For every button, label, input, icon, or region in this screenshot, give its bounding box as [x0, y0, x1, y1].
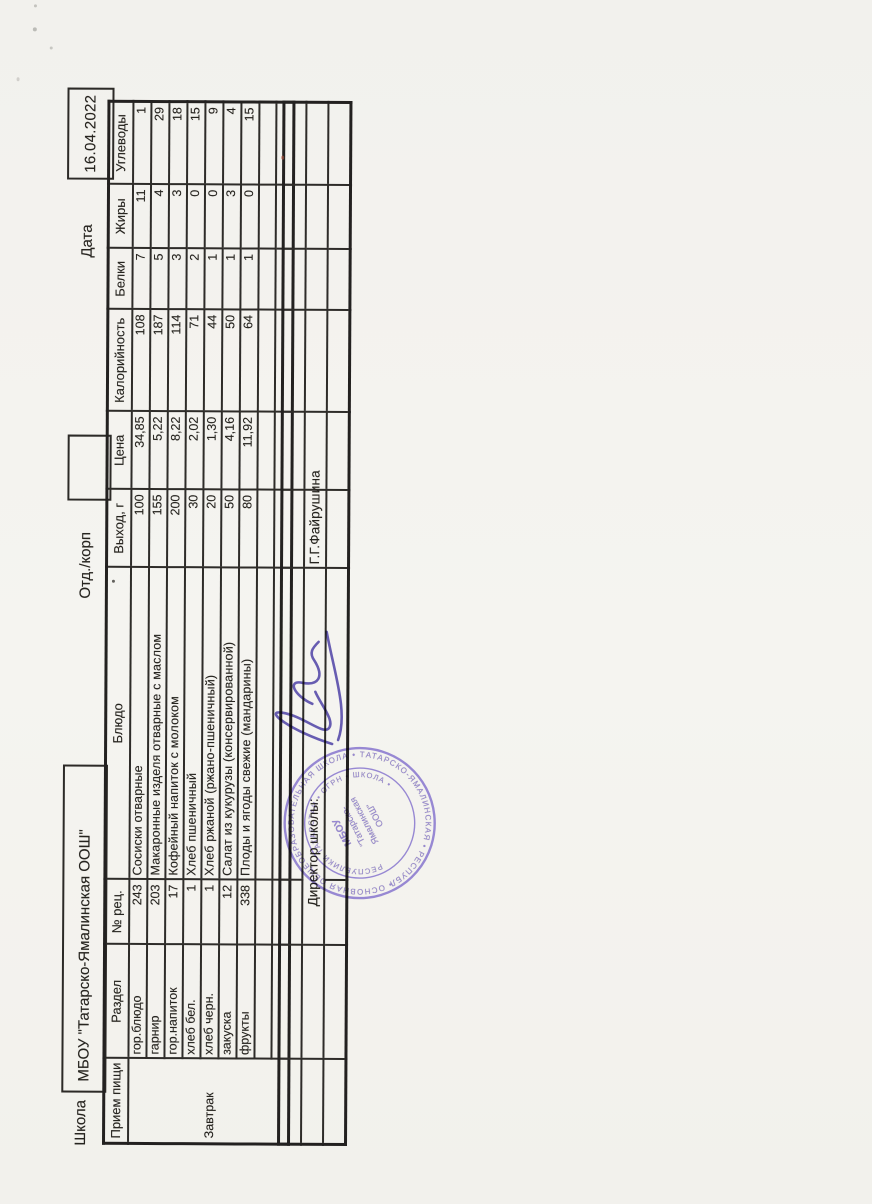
cell-dish: Кофейный напиток с молоком — [165, 568, 185, 880]
document: Школа МБОУ "Татарско-Ямалинская ООШ" Отд… — [0, 0, 872, 1204]
col-header-fat: Жиры — [108, 184, 133, 248]
scanned-menu-page: { "header": { "school_label": "Школа", "… — [0, 0, 872, 1200]
cell-carbs: 15 — [187, 102, 205, 185]
cell-dish: Хлеб ржаной (ржано-пшеничный) — [201, 568, 221, 880]
school-name: МБОУ "Татарско-Ямалинская ООШ" — [75, 829, 93, 1081]
cell-protein: 1 — [240, 249, 258, 310]
dept-label: Отд./корп — [77, 532, 94, 599]
red-speck-artifact — [281, 156, 284, 160]
cell-dish: Макаронные изделя отварные с маслом — [147, 567, 167, 879]
cell-price: 8,22 — [167, 412, 185, 490]
cell-protein: 1 — [204, 249, 222, 310]
col-header-recipe: № рец. — [105, 879, 130, 944]
cell-section: фрукты — [236, 945, 255, 1059]
cell-output: 50 — [221, 490, 239, 568]
date-label: Дата — [79, 224, 96, 257]
cell-output: 20 — [203, 490, 221, 568]
col-header-meal: Прием пищи — [104, 1058, 129, 1143]
cell-price: 2,02 — [185, 412, 203, 490]
rotated-sheet: Школа МБОУ "Татарско-Ямалинская ООШ" Отд… — [0, 0, 872, 1200]
cell-recipe: 338 — [237, 880, 255, 945]
cell-calories: 64 — [240, 310, 259, 412]
cell-recipe: 12 — [219, 880, 237, 945]
cell-recipe: 17 — [165, 880, 183, 945]
cell-carbs: 1 — [133, 101, 151, 184]
cell-fat: 0 — [241, 185, 259, 249]
school-name-box: МБОУ "Татарско-Ямалинская ООШ" — [61, 765, 108, 1093]
col-header-output: Выход, г — [107, 489, 132, 567]
cell-carbs: 4 — [223, 102, 241, 185]
cell-recipe: 243 — [129, 879, 147, 944]
cell-section: закуска — [218, 945, 237, 1059]
cell-protein: 5 — [150, 248, 168, 309]
director-signature — [258, 610, 364, 761]
cell-section: хлеб черн. — [200, 945, 219, 1059]
cell-carbs: 15 — [241, 102, 259, 185]
col-header-calories: Калорийность — [107, 309, 132, 411]
col-header-carbs: Углеводы — [109, 101, 134, 184]
cell-recipe: 1 — [183, 880, 201, 945]
cell-protein: 7 — [132, 248, 150, 309]
cell-fat: 3 — [223, 185, 241, 249]
col-header-section: Раздел — [104, 944, 129, 1058]
date-value: 16.04.2022 — [82, 95, 99, 173]
ink-dot-artifact — [112, 580, 115, 583]
cell-dish: Сосиски отварные — [129, 567, 149, 879]
cell-protein: 3 — [168, 249, 186, 310]
cell-section: гор.блюдо — [128, 944, 147, 1058]
cell-calories: 50 — [222, 310, 241, 412]
cell-calories: 108 — [132, 309, 151, 411]
cell-section: гарнир — [146, 944, 165, 1058]
col-header-dish: Блюдо — [105, 567, 131, 879]
cell-fat: 3 — [169, 185, 187, 249]
cell-output: 200 — [167, 490, 185, 568]
col-header-price: Цена — [107, 411, 132, 489]
cell-carbs: 29 — [151, 101, 169, 184]
cell-calories: 187 — [150, 309, 169, 411]
scan-speck — [34, 4, 37, 7]
cell-price: 11,92 — [239, 412, 257, 490]
cell-dish: Салат из кукурузы (консервированной) — [219, 568, 239, 880]
cell-protein: 2 — [186, 249, 204, 310]
cell-carbs: 18 — [169, 102, 187, 185]
cell-calories: 44 — [204, 310, 223, 412]
cell-fat: 0 — [187, 185, 205, 249]
cell-price: 4,16 — [221, 412, 239, 490]
scan-speck — [33, 27, 37, 31]
cell-price: 5,22 — [149, 411, 167, 489]
cell-price: 1,30 — [203, 412, 221, 490]
cell-dish: Плоды и ягоды свежие (мандарины) — [237, 568, 257, 880]
cell-price: 34,85 — [131, 411, 149, 489]
school-label: Школа — [72, 1100, 89, 1146]
cell-section: хлеб бел. — [182, 945, 201, 1059]
col-header-protein: Белки — [108, 248, 133, 309]
cell-carbs: 9 — [205, 102, 223, 185]
scan-speck — [50, 46, 53, 49]
meal-cell: Завтрак — [128, 1058, 289, 1144]
cell-fat: 4 — [151, 184, 169, 248]
cell-output: 100 — [131, 489, 149, 567]
cell-dish: Хлеб пшеничный — [183, 568, 203, 880]
school-stamp-icon: • ОСНОВНАЯ ОБЩЕОБРАЗОВАТЕЛЬНАЯ ШКОЛА • Т… — [277, 741, 442, 906]
director-name: Г.Г.Файрушина — [304, 490, 326, 568]
cell-protein: 1 — [222, 249, 240, 310]
scan-speck — [17, 77, 20, 81]
cell-section: гор.напиток — [164, 945, 183, 1059]
cell-calories: 114 — [168, 310, 187, 412]
cell-output: 155 — [149, 489, 167, 567]
cell-fat: 11 — [133, 184, 151, 248]
cell-recipe: 203 — [147, 879, 165, 944]
cell-output: 30 — [185, 490, 203, 568]
cell-fat: 0 — [205, 185, 223, 249]
cell-output: 80 — [239, 490, 257, 568]
cell-calories: 71 — [186, 310, 205, 412]
cell-recipe: 1 — [201, 880, 219, 945]
